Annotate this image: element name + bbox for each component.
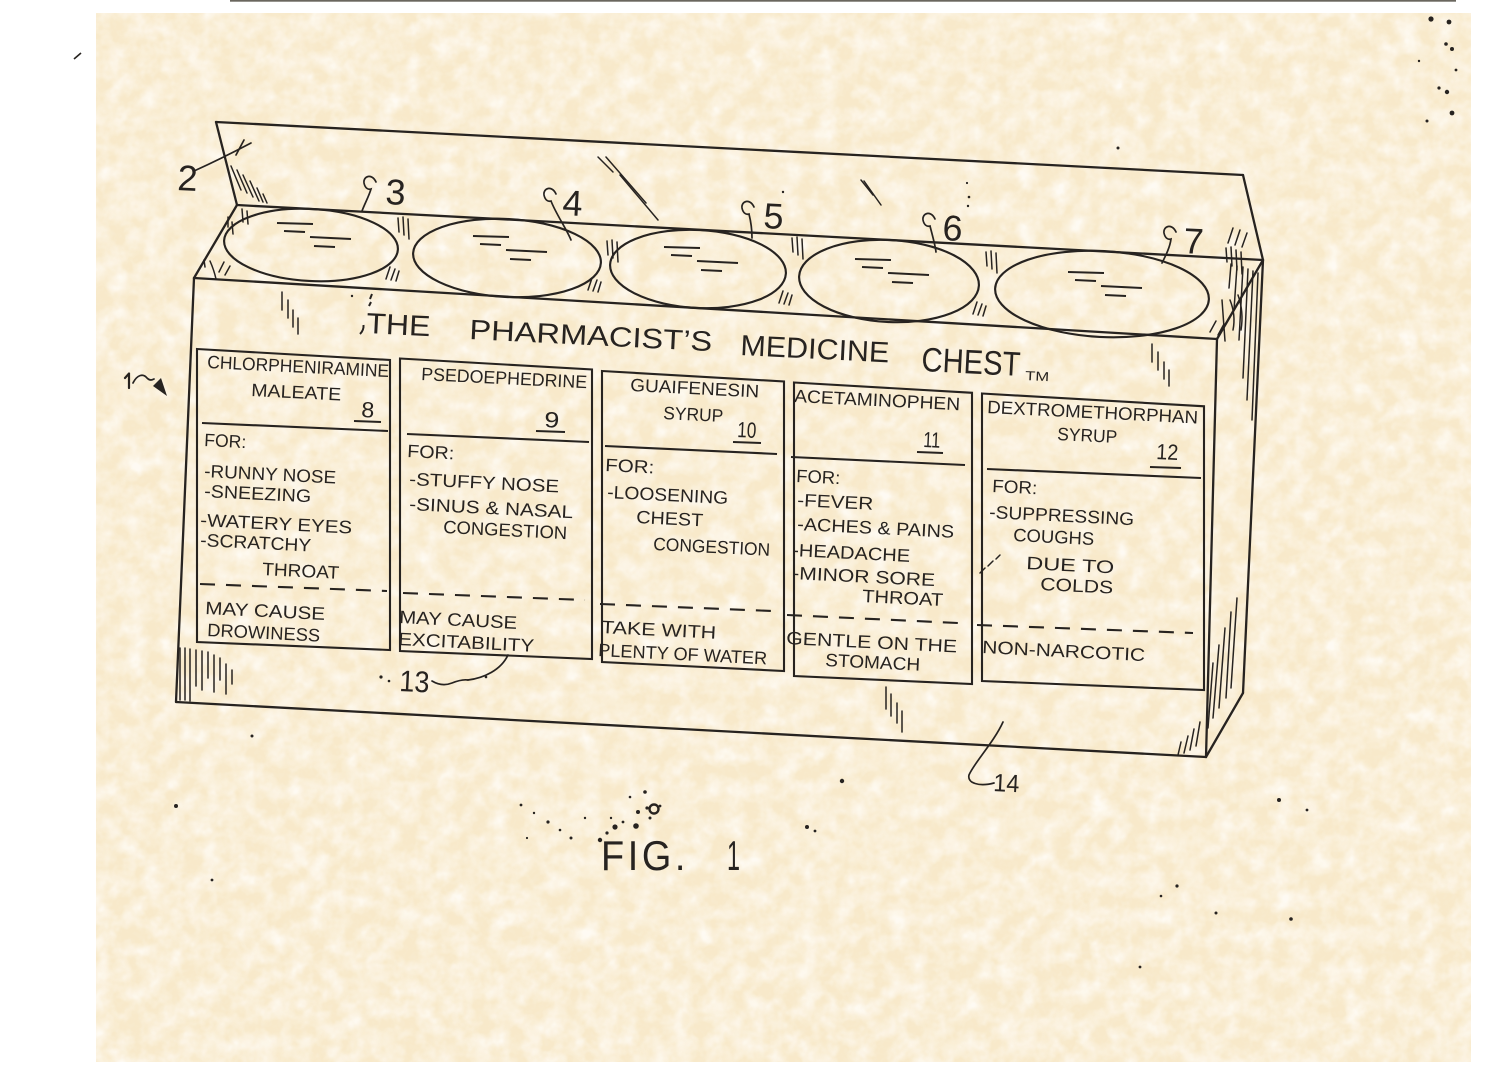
svg-text:14: 14 <box>993 769 1020 798</box>
svg-text:FOR:: FOR: <box>407 441 455 463</box>
svg-text:8: 8 <box>361 397 375 423</box>
svg-text:TM: TM <box>1025 368 1050 384</box>
svg-text:11: 11 <box>923 427 941 453</box>
svg-text:FOR:: FOR: <box>605 455 655 477</box>
svg-text:13: 13 <box>399 665 431 699</box>
svg-text:CHEST: CHEST <box>636 507 704 530</box>
svg-text:THROAT: THROAT <box>262 559 340 583</box>
svg-text:2: 2 <box>177 157 199 199</box>
svg-text:THE: THE <box>366 308 432 343</box>
svg-text:FIG.: FIG. <box>601 832 689 879</box>
svg-text:4: 4 <box>562 182 584 224</box>
svg-text:COLDS: COLDS <box>1040 574 1114 598</box>
svg-text:9: 9 <box>544 407 560 433</box>
svg-text:7: 7 <box>1183 220 1205 262</box>
svg-text:THROAT: THROAT <box>862 586 944 610</box>
svg-text:SYRUP: SYRUP <box>663 403 724 426</box>
svg-text:12: 12 <box>1156 439 1179 465</box>
svg-text:SYRUP: SYRUP <box>1057 424 1118 447</box>
svg-text:1: 1 <box>727 832 740 879</box>
svg-text:FOR:: FOR: <box>204 430 247 452</box>
svg-text:COUGHS: COUGHS <box>1013 525 1095 549</box>
svg-text:-FEVER: -FEVER <box>797 490 874 514</box>
svg-text:FOR:: FOR: <box>796 466 841 488</box>
svg-text:CHEST: CHEST <box>921 341 1022 384</box>
svg-text:10: 10 <box>737 417 757 443</box>
svg-text:6: 6 <box>942 207 964 249</box>
svg-text:5: 5 <box>763 195 785 237</box>
svg-text:FOR:: FOR: <box>992 476 1038 498</box>
svg-text:3: 3 <box>385 171 407 213</box>
